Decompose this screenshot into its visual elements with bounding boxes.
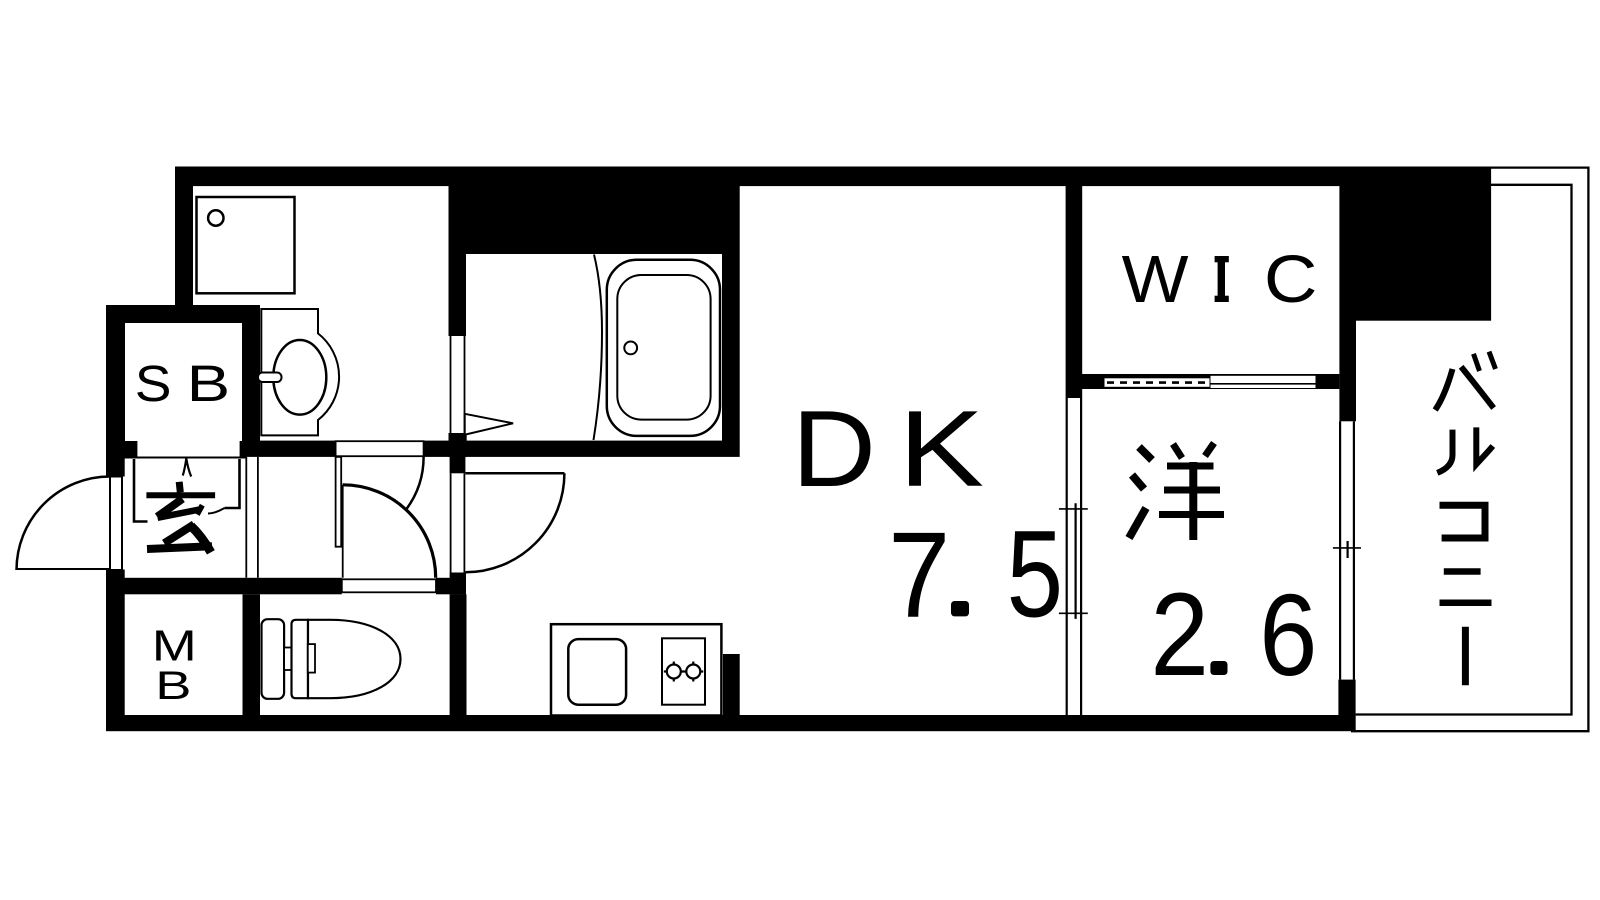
svg-text:S: S <box>135 356 172 413</box>
svg-text:2: 2 <box>1150 569 1209 701</box>
svg-text:5: 5 <box>1007 505 1063 643</box>
svg-text:6: 6 <box>1259 571 1317 700</box>
svg-text:7: 7 <box>888 506 950 642</box>
svg-text:K: K <box>899 389 985 509</box>
svg-text:C: C <box>1264 241 1318 316</box>
svg-text:W: W <box>1122 242 1189 317</box>
svg-text:B: B <box>187 356 231 413</box>
svg-text:B: B <box>155 664 191 708</box>
svg-text:D: D <box>792 387 876 508</box>
